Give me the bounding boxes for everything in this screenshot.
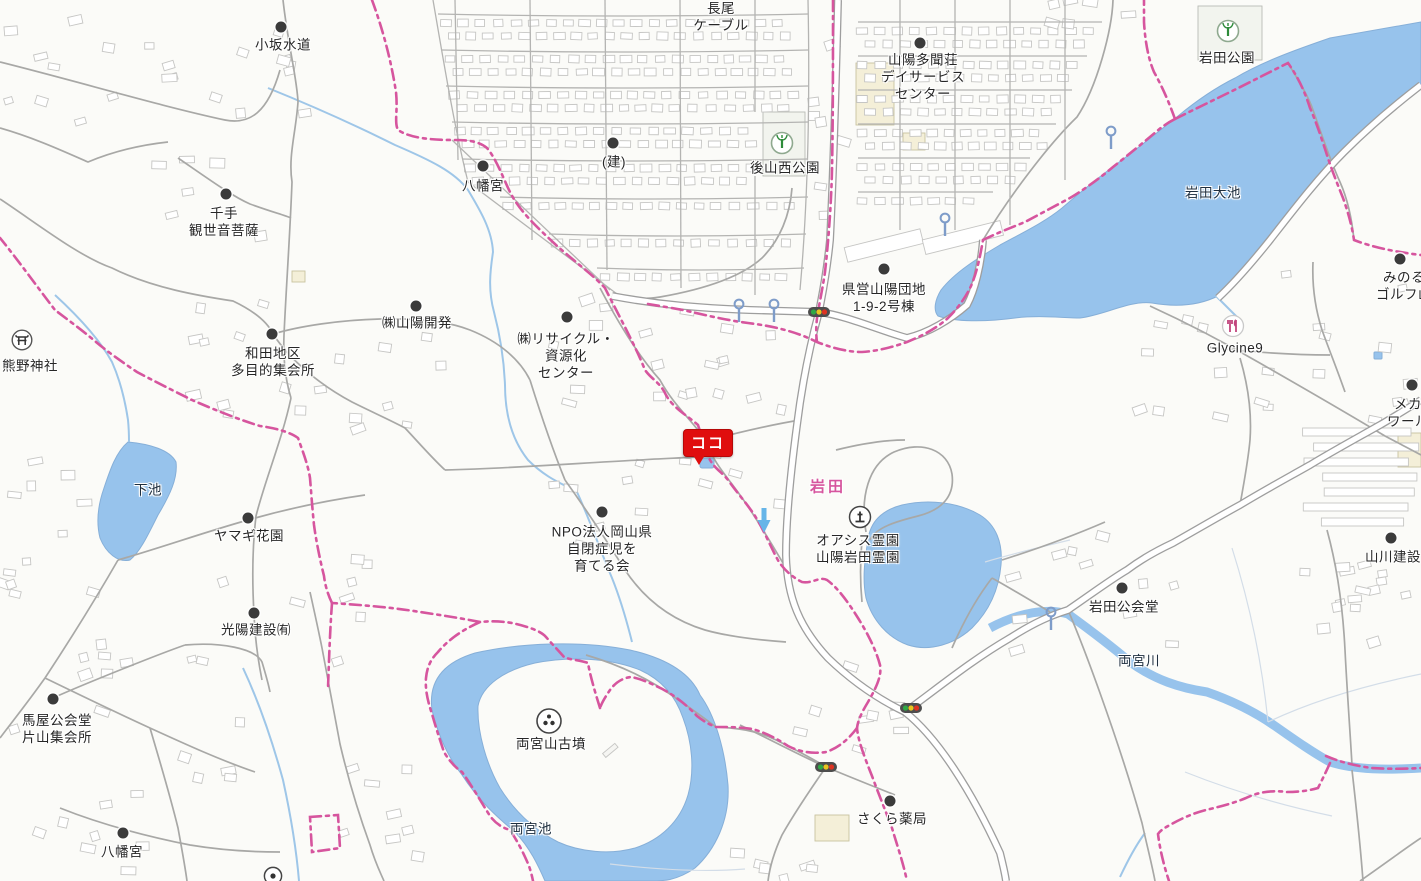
destination-marker: ココ [683, 429, 733, 457]
map-label-wada-chiku-shukaisho: 和田地区多目的集会所 [231, 345, 315, 379]
map-label-ryoguzan-kofun: 両宮山古墳 [516, 736, 586, 753]
map-label-iwata-oike: 岩田大池 [1185, 185, 1241, 202]
poi-dot-koyo-kensetsu [249, 608, 260, 619]
map-label-umaya-kokaido: 馬屋公会堂片山集会所 [22, 712, 92, 746]
map-label-ryogu-gawa: 両宮川 [1118, 653, 1160, 670]
poi-dot-minoru-golf [1395, 254, 1406, 265]
pole-icon [1104, 117, 1118, 143]
map-label-sakura-yakkyoku: さくら薬局 [857, 811, 927, 828]
traffic-light-icon [899, 702, 923, 714]
map-label-nagao-cable: 長尾ケーブル [693, 0, 748, 34]
map-label-recycle-center: ㈱リサイクル・資源化センター [517, 331, 614, 382]
poi-dot-kenei-sanyo-danchi [879, 264, 890, 275]
poi-dot-sakura-yakkyoku [885, 796, 896, 807]
pole-icon [732, 290, 746, 316]
poi-dot-sanyo-kaihatsu [411, 301, 422, 312]
park-icon [770, 131, 794, 155]
poi-dot-recycle-center [562, 312, 573, 323]
park-icon [1216, 19, 1240, 43]
poi-dot-sanyo-tamonso-daycare [915, 38, 926, 49]
map-label-meka-world: メカワール [1387, 396, 1421, 430]
map-label-iwata-kokaido: 岩田公会堂 [1089, 599, 1159, 616]
pole-icon [1044, 598, 1058, 624]
map-label-senju-kanzeon: 千手観世音菩薩 [189, 205, 259, 239]
traffic-light-icon [814, 761, 838, 773]
kofun-icon [535, 707, 563, 735]
map-label-tatemono: (建) [602, 154, 626, 171]
labels-overlay: ココ 小坂水道長尾ケーブル山陽多聞荘デイサービスセンター岩田公園(建)後山西公園… [0, 0, 1421, 881]
poi-dot-npo-okayama [597, 507, 608, 518]
map-label-yamakawa-kensetsu: 山川建設 [1365, 549, 1421, 566]
map-label-sanyo-tamonso-daycare: 山陽多聞荘デイサービスセンター [881, 52, 965, 103]
destination-marker-label: ココ [691, 435, 725, 452]
map-label-kosaka-suido: 小坂水道 [255, 37, 311, 54]
poi-dot-umaya-kokaido [48, 694, 59, 705]
poi-dot-hachimangu-south [118, 828, 129, 839]
poi-dot-yamagi-kaen [243, 513, 254, 524]
map-label-shimoike: 下池 [134, 482, 162, 499]
poi-dot-tatemono [608, 138, 619, 149]
map-label-koyo-kensetsu: 光陽建設㈲ [221, 622, 291, 639]
pole-icon [938, 204, 952, 230]
poi-dot-hachimangu-north [478, 161, 489, 172]
traffic-light-icon [807, 306, 831, 318]
map-label-iwata-park: 岩田公園 [1199, 50, 1255, 67]
map-label-iwata-place: 岩田 [810, 479, 846, 496]
map-label-hachimangu-south: 八幡宮 [101, 844, 143, 861]
poi-dot-meka-world [1407, 380, 1418, 391]
pole-icon [767, 290, 781, 316]
map-label-npo-okayama: NPO法人岡山県自閉症児を育てる会 [552, 524, 653, 575]
map-label-kenei-sanyo-danchi: 県営山陽団地1-9-2号棟 [842, 281, 926, 315]
map-label-glycine9: Glycine9 [1207, 340, 1264, 357]
map-label-yamagi-kaen: ヤマギ花園 [214, 528, 284, 545]
poi-dot-yamakawa-kensetsu [1386, 533, 1397, 544]
arrow-down-icon [754, 506, 774, 534]
torii-icon [11, 329, 33, 351]
map-label-oasis-reien: オアシス霊園山陽岩田霊園 [816, 532, 900, 566]
circle-dot-icon [263, 866, 283, 881]
poi-dot-kosaka-suido [276, 22, 287, 33]
cemetery-icon [848, 505, 872, 529]
poi-dot-senju-kanzeon [221, 189, 232, 200]
restaurant-icon [1221, 314, 1245, 338]
map-label-hachimangu-north: 八幡宮 [462, 178, 504, 195]
map-label-sanyo-kaihatsu: ㈱山陽開発 [382, 315, 452, 332]
map-label-kumano-jinja: 熊野神社 [2, 358, 58, 375]
map-canvas[interactable]: ココ 小坂水道長尾ケーブル山陽多聞荘デイサービスセンター岩田公園(建)後山西公園… [0, 0, 1421, 881]
map-label-ushiroyama-nishi-park: 後山西公園 [750, 160, 820, 177]
destination-marker-tail [693, 455, 705, 465]
poi-dot-iwata-kokaido [1117, 583, 1128, 594]
poi-dot-wada-chiku-shukaisho [267, 329, 278, 340]
map-label-minoru-golf: みのるゴルフ山 [1376, 269, 1421, 303]
map-label-ryogu-ike: 両宮池 [510, 821, 552, 838]
